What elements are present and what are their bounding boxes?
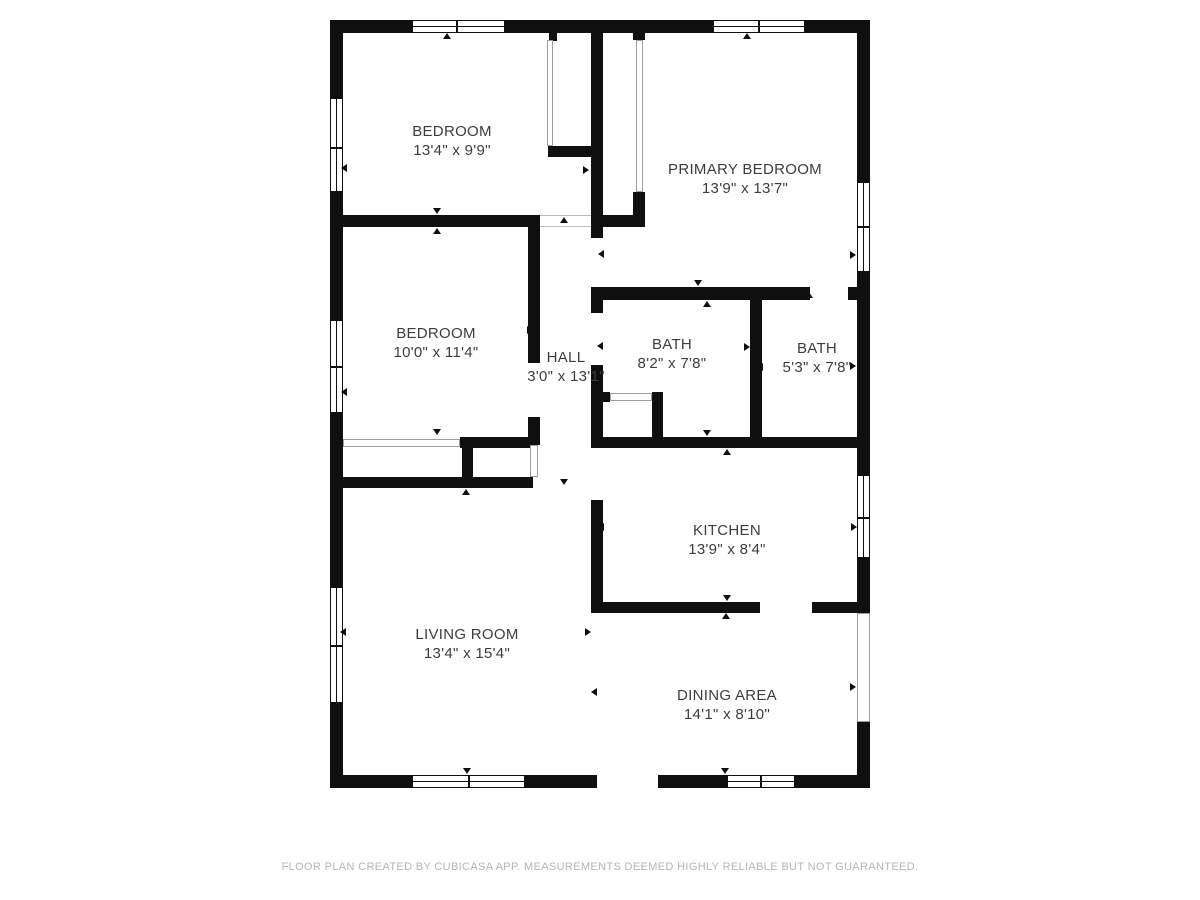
room-name-kitchen: KITCHEN xyxy=(693,522,761,539)
dimension-arrow-icon-up xyxy=(805,292,813,298)
bedroom2-closet-wall xyxy=(460,437,533,448)
dimension-arrow-icon-up xyxy=(462,489,470,495)
dimension-arrow-icon-up xyxy=(433,228,441,234)
room-label-kitchen: KITCHEN13'9" x 8'4" xyxy=(688,521,766,559)
window-left-bedroom1-pane-line xyxy=(336,99,337,191)
dimension-arrow-icon-down xyxy=(463,768,471,774)
window-bottom-living-divider xyxy=(468,775,470,788)
window-bottom-dining-divider xyxy=(760,775,762,788)
room-label-bedroom-2: BEDROOM10'0" x 11'4" xyxy=(393,324,478,362)
room-label-dining-area: DINING AREA14'1" x 8'10" xyxy=(677,686,777,724)
primary-closet-door-door-icon xyxy=(636,40,643,192)
room-dimensions-bath-1: 8'2" x 7'8" xyxy=(638,354,707,373)
room-label-bedroom-1: BEDROOM13'4" x 9'9" xyxy=(412,122,492,160)
dimension-arrow-icon-down xyxy=(694,280,702,286)
dimension-arrow-icon-right xyxy=(583,166,589,174)
room-name-hall: HALL xyxy=(547,349,586,366)
room-dimensions-dining-area: 14'1" x 8'10" xyxy=(677,705,777,724)
dimension-arrow-icon-right xyxy=(850,251,856,259)
primary-bath-wall-stub xyxy=(848,287,857,300)
window-left-bedroom2-divider xyxy=(330,366,343,368)
primary-closet-bottom xyxy=(591,215,645,227)
bedroom1-closet-door-door-icon xyxy=(547,40,553,146)
bedroom2-right-wall-upper xyxy=(528,227,540,363)
bath-kitchen-wall xyxy=(591,437,868,448)
room-dimensions-hall: 3'0" x 13'1" xyxy=(527,367,605,386)
window-right-kitchen-window-icon xyxy=(857,475,870,558)
dimension-arrow-icon-down xyxy=(808,438,816,444)
bath1-closet-right-wall xyxy=(652,392,663,448)
room-dimensions-bath-2: 5'3" x 7'8" xyxy=(783,358,852,377)
room-name-bath-2: BATH xyxy=(797,340,837,357)
dimension-arrow-icon-up xyxy=(723,449,731,455)
window-left-living-window-icon xyxy=(330,587,343,703)
dimension-arrow-icon-left xyxy=(757,363,763,371)
window-left-bedroom2-window-icon xyxy=(330,320,343,413)
room-dimensions-primary-bedroom: 13'9" x 13'7" xyxy=(668,179,822,198)
footer-disclaimer: FLOOR PLAN CREATED BY CUBICASA APP. MEAS… xyxy=(0,861,1200,873)
dimension-arrow-icon-right xyxy=(850,683,856,691)
dimension-arrow-icon-down xyxy=(723,595,731,601)
kitchen-left-wall xyxy=(591,500,603,613)
window-top-primary-divider xyxy=(758,20,760,33)
room-dimensions-living-room: 13'4" x 15'4" xyxy=(415,644,518,663)
window-top-bedroom1-divider xyxy=(456,20,458,33)
closet-connector-wall xyxy=(462,448,473,477)
dimension-arrow-icon-up xyxy=(703,301,711,307)
dimension-arrow-icon-left xyxy=(341,388,347,396)
room-label-hall: HALL3'0" x 13'1" xyxy=(527,348,605,386)
room-name-bedroom-1: BEDROOM xyxy=(412,123,492,140)
window-bottom-dining-window-icon xyxy=(727,775,795,788)
room-label-bath-1: BATH8'2" x 7'8" xyxy=(638,335,707,373)
bedroom2-closet-doors-door-icon xyxy=(343,439,460,447)
room-label-living-room: LIVING ROOM13'4" x 15'4" xyxy=(415,625,518,663)
dining-slider-door-door-icon xyxy=(857,613,870,722)
window-right-primary-divider xyxy=(857,226,870,228)
primary-closet-stub xyxy=(633,33,645,40)
dimension-arrow-icon-down xyxy=(433,429,441,435)
room-name-bath-1: BATH xyxy=(652,336,692,353)
hall-closet-opening-door-icon xyxy=(530,445,538,477)
dimension-arrow-icon-right xyxy=(851,523,857,531)
dimension-arrow-icon-down xyxy=(721,768,729,774)
dimension-arrow-icon-right xyxy=(744,343,750,351)
dimension-arrow-icon-down xyxy=(703,430,711,436)
window-right-kitchen-divider xyxy=(857,517,870,519)
room-dimensions-bedroom-1: 13'4" x 9'9" xyxy=(412,141,492,160)
window-left-bedroom1-window-icon xyxy=(330,98,343,192)
room-label-primary-bedroom: PRIMARY BEDROOM13'9" x 13'7" xyxy=(668,160,822,198)
room-name-living-room: LIVING ROOM xyxy=(415,626,518,643)
floor-plan-canvas: BEDROOM13'4" x 9'9"PRIMARY BEDROOM13'9" … xyxy=(0,0,1200,900)
window-top-bedroom1-window-icon xyxy=(412,20,505,33)
dimension-arrow-icon-up xyxy=(722,613,730,619)
dimension-arrow-icon-up xyxy=(743,33,751,39)
bath1-closet-door-door-icon xyxy=(610,393,652,401)
window-top-bedroom1-pane-line xyxy=(413,26,504,27)
dimension-arrow-icon-left xyxy=(598,250,604,258)
window-bottom-living-window-icon xyxy=(412,775,525,788)
dimension-arrow-icon-right xyxy=(585,628,591,636)
dimension-arrow-icon-left xyxy=(341,164,347,172)
bath1-closet-stub xyxy=(597,392,610,402)
dimension-arrow-icon-up xyxy=(560,217,568,223)
bath-divider-wall xyxy=(750,300,762,448)
room-name-bedroom-2: BEDROOM xyxy=(396,325,476,342)
room-dimensions-kitchen: 13'9" x 8'4" xyxy=(688,540,766,559)
hall-right-wall-upper xyxy=(591,33,603,238)
dimension-arrow-icon-left xyxy=(598,523,604,531)
primary-bath-wall xyxy=(591,287,810,300)
dimension-arrow-icon-left xyxy=(591,688,597,696)
dimension-arrow-icon-up xyxy=(443,33,451,39)
room-label-bath-2: BATH5'3" x 7'8" xyxy=(783,339,852,377)
kitchen-bottom-wall-left xyxy=(591,602,760,613)
bedroom1-closet-bottom xyxy=(548,146,603,157)
window-top-primary-window-icon xyxy=(713,20,805,33)
dimension-arrow-icon-down xyxy=(433,208,441,214)
window-left-living-divider xyxy=(330,645,343,647)
window-left-bedroom1-divider xyxy=(330,147,343,149)
bedroom1-bottom-wall xyxy=(343,215,540,227)
living-room-top-wall xyxy=(343,477,533,488)
dimension-arrow-icon-right xyxy=(527,326,533,334)
window-right-primary-window-icon xyxy=(857,182,870,272)
dimension-arrow-icon-left xyxy=(340,628,346,636)
dimension-arrow-icon-down xyxy=(560,479,568,485)
kitchen-bottom-wall-right xyxy=(812,602,857,613)
room-dimensions-bedroom-2: 10'0" x 11'4" xyxy=(393,343,478,362)
room-name-primary-bedroom: PRIMARY BEDROOM xyxy=(668,161,822,178)
room-name-dining-area: DINING AREA xyxy=(677,687,777,704)
